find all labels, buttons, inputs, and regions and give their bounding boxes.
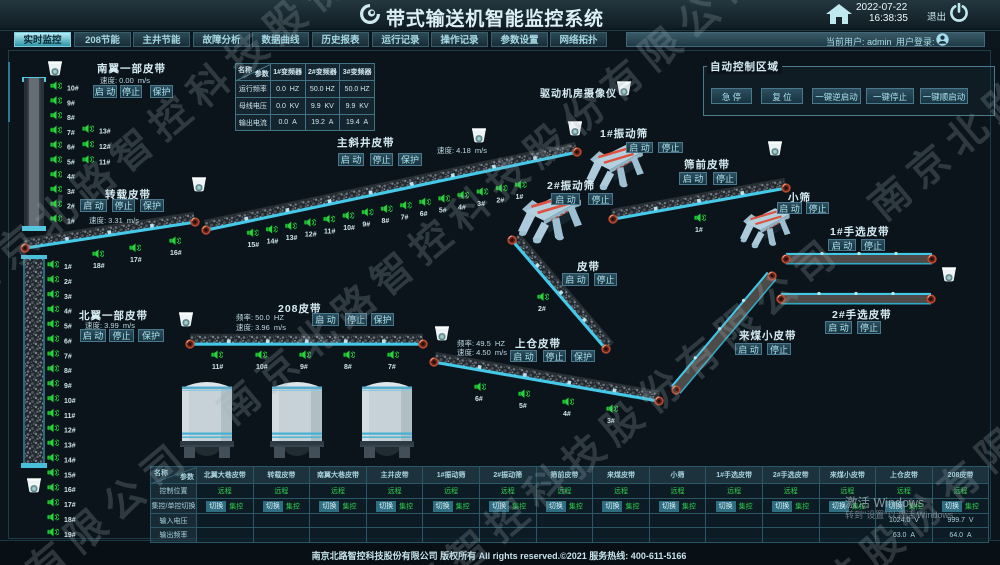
svg-text:18#: 18# — [93, 263, 105, 270]
svg-text:3#: 3# — [477, 201, 485, 208]
svg-text:10#: 10# — [64, 398, 76, 405]
svg-text:2#: 2# — [538, 306, 546, 313]
svg-text:13#: 13# — [99, 129, 111, 136]
svg-text:1#: 1# — [695, 227, 703, 234]
svg-text:4#: 4# — [458, 204, 466, 211]
svg-text:2#: 2# — [496, 197, 504, 204]
svg-text:17#: 17# — [64, 502, 76, 509]
svg-text:10#: 10# — [67, 86, 79, 93]
svg-text:2#: 2# — [67, 204, 75, 211]
svg-text:9#: 9# — [67, 100, 75, 107]
svg-text:8#: 8# — [64, 368, 72, 375]
svg-text:8#: 8# — [381, 218, 389, 225]
svg-text:3#: 3# — [67, 189, 75, 196]
svg-text:6#: 6# — [67, 145, 75, 152]
svg-text:6#: 6# — [475, 396, 483, 403]
svg-text:7#: 7# — [67, 130, 75, 137]
svg-text:3#: 3# — [607, 418, 615, 425]
svg-text:8#: 8# — [67, 115, 75, 122]
svg-text:4#: 4# — [563, 411, 571, 418]
svg-text:11#: 11# — [64, 413, 75, 420]
svg-text:9#: 9# — [64, 383, 72, 390]
svg-text:7#: 7# — [64, 353, 72, 360]
svg-text:1#: 1# — [67, 218, 75, 225]
svg-text:9#: 9# — [362, 221, 370, 228]
svg-text:1#: 1# — [515, 194, 523, 201]
svg-text:19#: 19# — [64, 532, 76, 539]
svg-text:13#: 13# — [64, 443, 76, 450]
svg-text:6#: 6# — [64, 338, 72, 345]
svg-text:15#: 15# — [64, 472, 76, 479]
svg-text:11#: 11# — [324, 228, 335, 235]
svg-text:10#: 10# — [343, 225, 355, 232]
svg-text:3#: 3# — [64, 294, 72, 301]
svg-text:13#: 13# — [286, 235, 298, 242]
svg-text:7#: 7# — [401, 215, 409, 222]
svg-text:6#: 6# — [420, 211, 428, 218]
svg-text:14#: 14# — [64, 457, 76, 464]
svg-text:5#: 5# — [64, 324, 72, 331]
svg-text:5#: 5# — [439, 208, 447, 215]
svg-text:17#: 17# — [130, 257, 142, 264]
svg-text:11#: 11# — [99, 159, 110, 166]
svg-text:5#: 5# — [67, 159, 75, 166]
svg-text:12#: 12# — [305, 232, 317, 239]
svg-text:11#: 11# — [212, 364, 223, 371]
svg-text:2#: 2# — [64, 279, 72, 286]
svg-text:9#: 9# — [300, 364, 308, 371]
svg-text:14#: 14# — [267, 239, 279, 246]
svg-text:5#: 5# — [519, 403, 527, 410]
svg-text:8#: 8# — [344, 364, 352, 371]
svg-text:12#: 12# — [99, 144, 111, 151]
svg-text:15#: 15# — [248, 242, 260, 249]
svg-text:4#: 4# — [64, 309, 72, 316]
svg-text:10#: 10# — [256, 364, 268, 371]
svg-text:12#: 12# — [64, 428, 76, 435]
svg-text:16#: 16# — [170, 250, 182, 257]
svg-text:4#: 4# — [67, 174, 75, 181]
svg-text:18#: 18# — [64, 517, 76, 524]
svg-text:16#: 16# — [64, 487, 76, 494]
svg-text:1#: 1# — [64, 264, 72, 271]
svg-text:7#: 7# — [388, 364, 396, 371]
